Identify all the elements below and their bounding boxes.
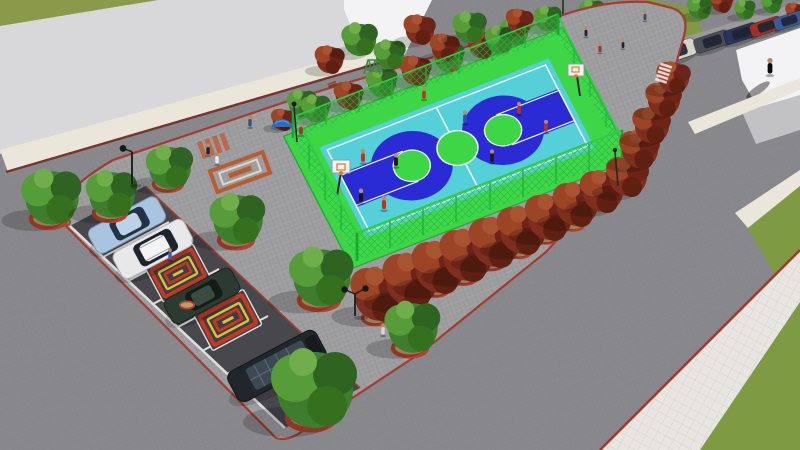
scene-svg xyxy=(0,0,800,450)
tree-planter xyxy=(180,301,194,308)
render-viewport xyxy=(0,0,800,450)
